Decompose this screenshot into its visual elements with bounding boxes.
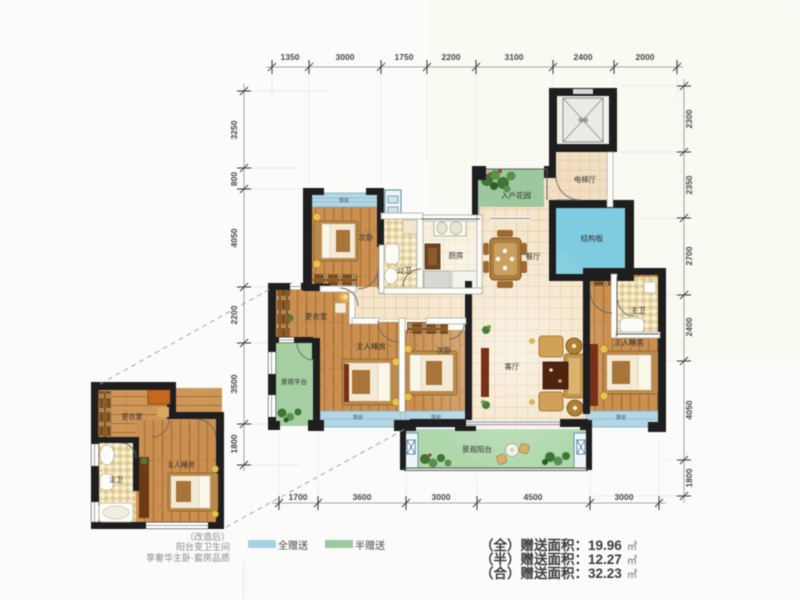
svg-text:更衣室: 更衣室 [305,311,328,321]
svg-text:1800: 1800 [684,468,694,487]
svg-text:4500: 4500 [524,492,543,502]
svg-text:（改造后）: （改造后） [185,531,230,542]
svg-text:3000: 3000 [432,492,451,502]
svg-text:（半）赠送面积：12.27: （半）赠送面积：12.27 [480,551,622,567]
svg-text:3600: 3600 [353,492,372,502]
svg-text:4050: 4050 [229,228,239,247]
svg-text:1700: 1700 [289,492,308,502]
svg-text:享奢华主卧·套房品质: 享奢华主卧·套房品质 [146,552,230,563]
svg-text:结构板: 结构板 [581,233,604,243]
svg-text:入户花园: 入户花园 [501,190,531,200]
svg-text:电梯厅: 电梯厅 [574,174,597,184]
svg-text:次卧: 次卧 [437,345,452,355]
svg-text:客厅: 客厅 [505,361,520,371]
svg-text:2200: 2200 [229,305,239,324]
svg-text:主人睡房: 主人睡房 [167,460,195,469]
svg-text:3250: 3250 [229,120,239,139]
svg-text:飘窗: 飘窗 [339,197,349,204]
svg-text:1350: 1350 [281,52,300,62]
svg-text:2300: 2300 [684,109,694,128]
svg-text:飘窗: 飘窗 [431,414,441,421]
svg-text:2000: 2000 [636,52,655,62]
svg-text:电梯: 电梯 [578,117,588,124]
svg-text:主卫: 主卫 [631,305,646,315]
svg-text:3000: 3000 [615,492,634,502]
svg-text:主人睡房: 主人睡房 [614,337,644,347]
svg-text:2400: 2400 [684,317,694,336]
svg-text:餐厅: 餐厅 [526,252,541,261]
svg-text:3100: 3100 [505,52,524,62]
svg-text:（合）赠送面积：32.23: （合）赠送面积：32.23 [480,565,622,581]
svg-text:4050: 4050 [684,400,694,419]
svg-text:1750: 1750 [395,52,414,62]
svg-text:2200: 2200 [442,52,461,62]
svg-text:更衣室: 更衣室 [122,412,143,421]
svg-text:次卧: 次卧 [359,232,374,242]
svg-text:㎡: ㎡ [627,554,637,567]
svg-text:（全）赠送面积：19.96: （全）赠送面积：19.96 [480,537,622,553]
svg-text:主人睡房: 主人睡房 [356,341,386,351]
svg-text:景观平台: 景观平台 [281,377,307,386]
svg-text:半赠送: 半赠送 [355,539,385,552]
svg-text:飘窗: 飘窗 [353,414,363,421]
svg-text:1800: 1800 [229,434,239,453]
svg-text:全赠送: 全赠送 [278,539,308,552]
svg-text:阳台变卫生间: 阳台变卫生间 [176,541,230,552]
svg-text:2350: 2350 [684,175,694,194]
svg-text:㎡: ㎡ [627,540,637,553]
svg-text:厨房: 厨房 [449,250,464,260]
svg-text:3500: 3500 [229,374,239,393]
svg-text:飘窗: 飘窗 [616,414,626,421]
svg-text:800: 800 [229,172,239,186]
svg-text:主卫: 主卫 [109,475,123,484]
svg-text:2700: 2700 [684,246,694,265]
svg-text:㎡: ㎡ [627,568,637,581]
svg-text:2400: 2400 [574,52,593,62]
svg-text:3000: 3000 [336,52,355,62]
svg-text:景观阳台: 景观阳台 [462,444,492,454]
svg-text:公卫: 公卫 [397,266,412,275]
